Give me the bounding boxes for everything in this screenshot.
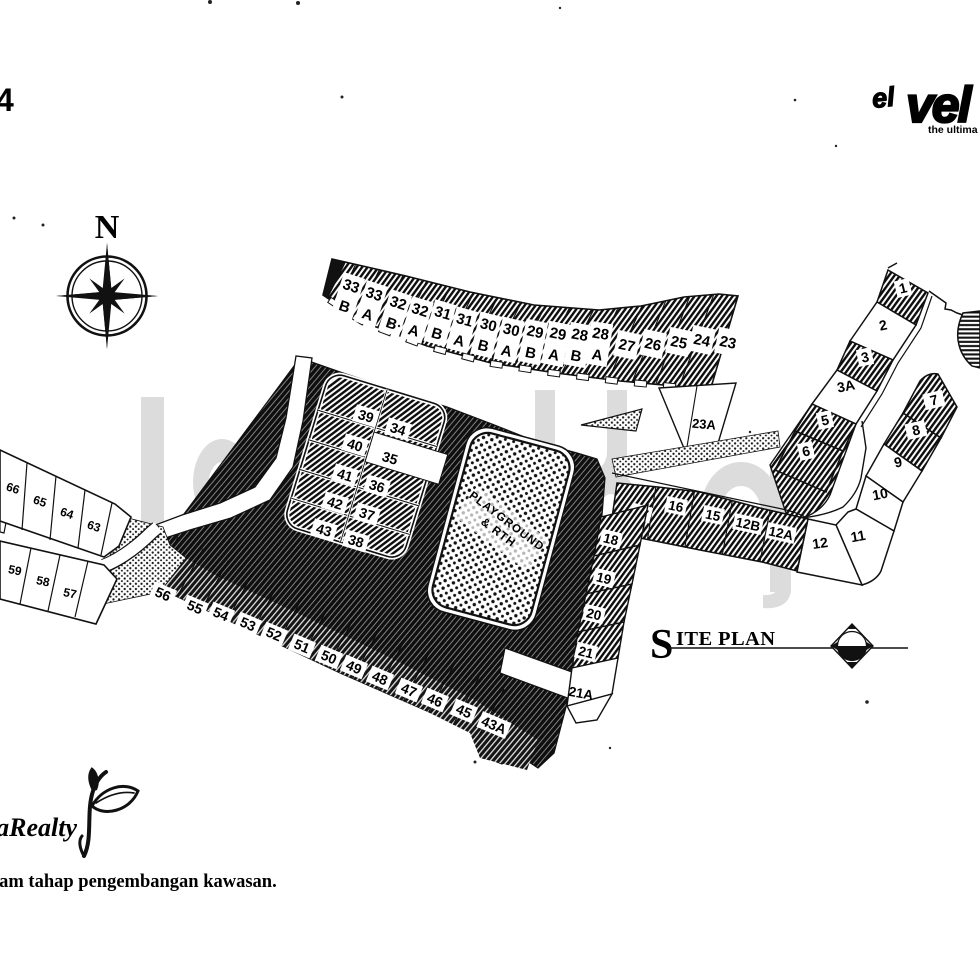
svg-text:N: N [95,209,120,246]
svg-text:ITE PLAN: ITE PLAN [676,628,775,650]
svg-text:lam tahap pengembangan kawasan: lam tahap pengembangan kawasan. [0,872,277,892]
svg-text:S: S [650,622,673,668]
svg-text:29: 29 [525,322,545,342]
svg-text:28: 28 [591,325,610,344]
svg-text:26: 26 [643,335,663,355]
svg-text:27: 27 [617,336,637,356]
svg-text:4: 4 [0,82,14,118]
svg-text:el: el [870,82,896,114]
svg-text:29: 29 [548,324,568,344]
svg-text:3A: 3A [836,376,857,395]
svg-text:23: 23 [718,333,738,353]
svg-text:12: 12 [811,534,829,552]
svg-text:25: 25 [669,333,689,353]
svg-text:the ultima: the ultima [928,124,978,136]
svg-text:11: 11 [849,527,867,545]
svg-text:28: 28 [570,325,589,345]
svg-text:raRealty: raRealty [0,813,77,842]
svg-text:23A: 23A [691,416,717,433]
svg-text:10: 10 [871,485,890,504]
